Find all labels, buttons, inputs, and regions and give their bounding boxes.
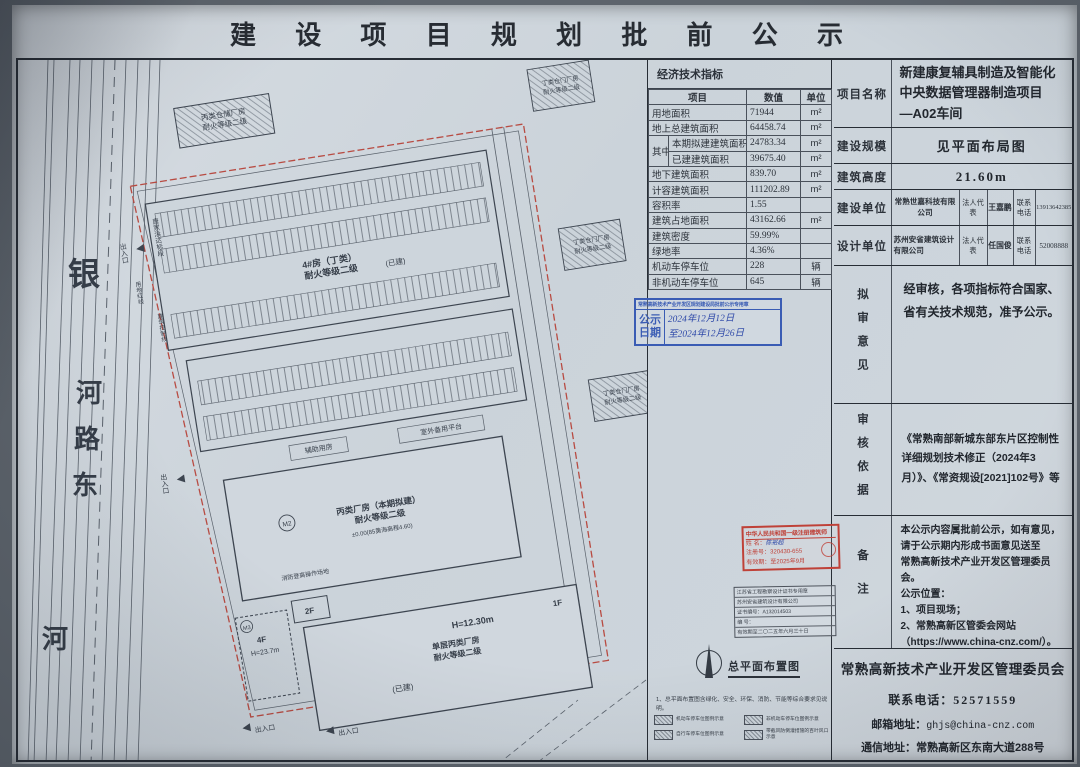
econ-item: 非机动车停车位 xyxy=(649,274,747,289)
height-value: 21.60m xyxy=(892,164,1073,189)
b3-mark: M2 xyxy=(282,520,292,528)
design-firm-stamp: 江苏省工程勘察设计证书专用章 苏州安省建筑设计有限公司 证书编号：A132014… xyxy=(734,585,837,638)
econ-value: 111202.89 xyxy=(747,182,801,197)
b5-mark: M3 xyxy=(243,625,251,632)
info-table: 项目名称 新建康复辅具制造及智能化中央数据管理器制造项目 —A02车间 建设规模… xyxy=(834,60,1073,760)
econ-header-value: 数值 xyxy=(747,90,801,105)
row-opinion: 拟审意见 经审核，各项指标符合国家、省有关技术规范，准予公示。 xyxy=(834,266,1073,404)
basis-text: 《常熟南部新城东部东片区控制性详细规划技术修正（2024年3月）》、《常资规设[… xyxy=(892,404,1073,515)
firm-stamp-validity: 有效期至二〇二五年六月三十日 xyxy=(735,626,835,637)
econ-unit xyxy=(801,228,832,243)
site-plan-svg: 银 河 路 东 河 丙类仓储厂房 耐火等级二级 xyxy=(18,60,647,760)
econ-unit xyxy=(801,197,832,212)
public-notice-stamp: 常熟高新技术产业开发区规划建设局批前公示专用章 公示日期 2024年12月12日… xyxy=(634,298,782,346)
econ-item: 容积率 xyxy=(649,197,747,212)
econ-item: 已建建筑面积 xyxy=(669,151,747,166)
legend-swatch-icon xyxy=(744,730,763,740)
opinion-text: 经审核，各项指标符合国家、省有关技术规范，准予公示。 xyxy=(892,266,1073,403)
legend-text: 机动车停车位图例示意 xyxy=(676,717,724,723)
econ-item: 建筑占地面积 xyxy=(649,213,747,228)
architect-reg-no: 320430-655 xyxy=(770,549,802,556)
opinion-label: 拟审意见 xyxy=(834,266,892,403)
econ-item: 绿地率 xyxy=(649,243,747,258)
legend-text: 自行车停车位图例示意 xyxy=(676,732,724,738)
econ-value: 4.36% xyxy=(747,243,801,258)
econ-item: 机动车停车位 xyxy=(649,259,747,274)
econ-value: 64458.74 xyxy=(747,120,801,135)
project-name-label: 项目名称 xyxy=(834,60,892,127)
econ-value: 59.99% xyxy=(747,228,801,243)
builder-label: 建设单位 xyxy=(834,190,892,225)
econ-unit xyxy=(801,243,832,258)
econ-unit: m² xyxy=(801,105,832,120)
econ-item: 建筑密度 xyxy=(649,228,747,243)
legend-text: 带截风防倒灌措施的百叶风口示意 xyxy=(766,729,830,741)
legend-text: 非机动车停车位图例示意 xyxy=(766,717,819,723)
scale-value: 见平面布局图 xyxy=(892,128,1073,163)
footer-contact: 常熟高新技术产业开发区管理委员会 联系电话：52571559 邮箱地址：ghjs… xyxy=(834,645,1073,760)
econ-row: 用地面积71944m² xyxy=(649,105,832,120)
econ-item: 地下建筑面积 xyxy=(649,166,747,181)
site-plan-drawing: 银 河 路 东 河 丙类仓储厂房 耐火等级二级 xyxy=(18,60,647,760)
legend-swatch-icon xyxy=(744,715,763,725)
econ-row: 容积率1.55 xyxy=(649,197,832,212)
econ-value: 228 xyxy=(747,259,801,274)
econ-unit: m² xyxy=(801,166,832,181)
econ-unit: m² xyxy=(801,213,832,228)
footer-phone: 52571559 xyxy=(953,693,1017,707)
basis-label: 审核依据 xyxy=(834,404,892,515)
content-frame: 银 河 路 东 河 丙类仓储厂房 耐火等级二级 xyxy=(16,58,1074,762)
designer-phone-label: 联系电话 xyxy=(1014,226,1036,265)
legend-swatch-icon xyxy=(654,730,673,740)
econ-unit: m² xyxy=(801,182,832,197)
builder-company: 常熟世嘉科技有限公司 xyxy=(892,190,960,225)
econ-value: 645 xyxy=(747,274,801,289)
road-char-yin: 银 xyxy=(68,256,100,292)
footer-address: 常熟高新区东南大道288号 xyxy=(916,742,1044,754)
b5-floors: 4F xyxy=(256,635,267,645)
legend-swatch-icon xyxy=(654,715,673,725)
econ-unit: m² xyxy=(801,151,832,166)
scale-label: 建设规模 xyxy=(834,128,892,163)
page-title: 建 设 项 目 规 划 批 前 公 示 xyxy=(12,15,1077,52)
econ-item: 用地面积 xyxy=(649,105,747,120)
econ-group-label: 其中 xyxy=(649,136,669,167)
river-char: 河 xyxy=(42,624,68,654)
svg-text:出入口: 出入口 xyxy=(254,722,276,734)
econ-value: 39675.40 xyxy=(747,151,801,166)
econ-header-item: 项目 xyxy=(649,90,747,105)
row-project-name: 项目名称 新建康复辅具制造及智能化中央数据管理器制造项目 —A02车间 xyxy=(834,60,1073,128)
managing-org: 常熟高新技术产业开发区管理委员会 xyxy=(834,658,1073,678)
econ-row: 地上总建筑面积64458.74m² xyxy=(649,120,832,135)
econ-item: 计容建筑面积 xyxy=(649,182,747,197)
architect-stamp: 中华人民共和国一级注册建筑师 姓 名：陈裕超 注册号：320430-655 有效… xyxy=(741,524,840,571)
legend-item: 自行车停车位图例示意 xyxy=(654,729,740,741)
econ-header-row: 项目 数值 单位 xyxy=(649,90,832,105)
remark-label: 备注 xyxy=(834,516,892,648)
econ-item: 地上总建筑面积 xyxy=(649,120,747,135)
econ-value: 24783.34 xyxy=(747,136,801,151)
econ-value: 839.70 xyxy=(747,166,801,181)
row-builder: 建设单位 常熟世嘉科技有限公司 法人代表 王嘉鹏 联系电话 1391364238… xyxy=(834,190,1073,226)
row-basis: 审核依据 《常熟南部新城东部东片区控制性详细规划技术修正（2024年3月）》、《… xyxy=(834,404,1073,516)
econ-unit: 辆 xyxy=(801,259,832,274)
econ-row: 建筑占地面积43162.66m² xyxy=(649,213,832,228)
middle-column: 经济技术指标 项目 数值 单位 用地面积71944m²地上总建筑面积64458.… xyxy=(647,60,832,760)
econ-table: 项目 数值 单位 用地面积71944m²地上总建筑面积64458.74m²其中本… xyxy=(648,89,832,290)
designer-label: 设计单位 xyxy=(834,226,892,265)
econ-row: 计容建筑面积111202.89m² xyxy=(649,182,832,197)
notice-date-label: 公示日期 xyxy=(636,310,665,344)
parcel-group: 丙类仓储厂房 耐火等级二级 4#房（丁类） 耐火等级二级 (已建) xyxy=(98,60,647,760)
road-char-lu: 路 xyxy=(74,424,101,454)
legend-item: 机动车停车位图例示意 xyxy=(654,715,740,725)
econ-unit: 辆 xyxy=(801,274,832,289)
row-scale: 建设规模 见平面布局图 xyxy=(834,128,1073,164)
row-height: 建筑高度 21.60m xyxy=(834,164,1073,190)
designer-phone: 52008888 xyxy=(1036,226,1073,265)
b6-floors: 2F xyxy=(304,606,315,616)
architect-name: 陈裕超 xyxy=(765,540,783,546)
econ-value: 1.55 xyxy=(747,197,801,212)
builder-legal-rep: 王嘉鹏 xyxy=(988,190,1014,225)
designer-legal-rep: 任国俊 xyxy=(988,226,1014,265)
econ-unit: m² xyxy=(801,136,832,151)
econ-value: 43162.66 xyxy=(747,213,801,228)
b5-height: H=23.7m xyxy=(251,647,281,658)
econ-row: 已建建筑面积39675.40m² xyxy=(649,151,832,166)
north-compass-icon xyxy=(696,644,722,680)
econ-row: 其中本期拟建建筑面积24783.34m² xyxy=(649,136,832,151)
econ-table-title: 经济技术指标 xyxy=(648,60,831,89)
svg-text:出入口: 出入口 xyxy=(158,472,170,495)
notice-sheet: 建 设 项 目 规 划 批 前 公 示 xyxy=(12,5,1077,764)
project-name-value: 新建康复辅具制造及智能化中央数据管理器制造项目 —A02车间 xyxy=(892,60,1073,127)
econ-row: 建筑密度59.99% xyxy=(649,228,832,243)
row-remark: 备注 本公示内容属批前公示，如有意见， 请于公示期内形成书面意见送至 常熟高新技… xyxy=(834,516,1073,649)
econ-row: 地下建筑面积839.70m² xyxy=(649,166,832,181)
econ-item: 本期拟建建筑面积 xyxy=(669,136,747,151)
builder-phone-label: 联系电话 xyxy=(1014,190,1036,225)
designer-company: 苏州安省建筑设计有限公司 xyxy=(892,226,960,265)
legal-rep-label: 法人代表 xyxy=(960,190,988,225)
b4-floors: 1F xyxy=(552,598,563,608)
legend-item: 带截风防倒灌措施的百叶风口示意 xyxy=(744,729,830,741)
road-char-dong: 东 xyxy=(72,470,98,500)
remark-text: 本公示内容属批前公示，如有意见， 请于公示期内形成书面意见送至 常熟高新技术产业… xyxy=(892,516,1073,648)
econ-row: 绿地率4.36% xyxy=(649,243,832,258)
notice-dates: 2024年12月12日 至2024年12月26日 xyxy=(665,309,781,345)
road-char-he: 河 xyxy=(76,378,102,408)
aux-room-label: 辅助用房 xyxy=(304,442,333,455)
plan-note: 1、总平面布置图含绿化、安全、环保、消防、节能等综合要求见说明。 xyxy=(656,696,828,713)
row-designer: 设计单位 苏州安省建筑设计有限公司 法人代表 任国俊 联系电话 52008888 xyxy=(834,226,1073,266)
height-label: 建筑高度 xyxy=(834,164,892,189)
builder-phone: 13913642385 xyxy=(1036,190,1073,225)
legend-item: 非机动车停车位图例示意 xyxy=(744,715,830,725)
footer-email: ghjs@china-cnz.com xyxy=(926,721,1034,732)
architect-validity: 至2025年9月 xyxy=(770,558,805,565)
econ-row: 机动车停车位228辆 xyxy=(649,259,832,274)
econ-unit: m² xyxy=(801,120,832,135)
econ-header-unit: 单位 xyxy=(801,90,832,105)
econ-value: 71944 xyxy=(747,105,801,120)
plan-legend-title: 总平面布置图 xyxy=(728,658,800,678)
econ-row: 非机动车停车位645辆 xyxy=(649,274,832,289)
plan-legend: 机动车停车位图例示意非机动车停车位图例示意自行车停车位图例示意带截风防倒灌措施的… xyxy=(654,715,830,741)
